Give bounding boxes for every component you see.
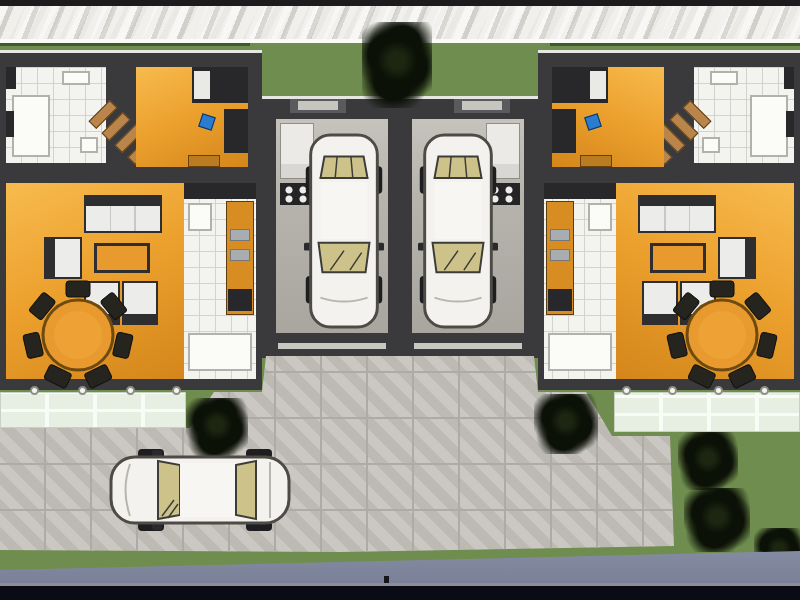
toilet [702,137,720,153]
blue-desk-chair [584,113,602,131]
living-room-right [616,183,794,379]
bathroom-wall-nib [784,67,794,89]
bathroom-right [694,67,794,163]
bed-pillow [590,71,606,99]
armchair [44,237,82,279]
round-dining-table [19,279,137,391]
bedroom-dresser [188,155,220,167]
terrace-light [760,386,769,395]
bathroom-wall-nib-2 [6,111,14,137]
kitchen-wall-band [544,183,616,199]
bedroom-desk [224,109,248,153]
living-room-left [6,183,184,379]
sofa [84,195,162,233]
round-dining-table [663,279,781,391]
terrace-right [614,392,800,432]
bathroom-sink [710,71,738,85]
garage-car-right [418,133,498,329]
bathtub [12,95,50,157]
kitchen-sink [230,229,250,241]
garage-block [262,96,538,358]
bed-pillow [194,71,210,99]
kitchen-sink [550,229,570,241]
tree-back-garden [362,22,432,108]
terrace-light [172,386,181,395]
coffee-table [94,243,150,273]
armchair [718,237,756,279]
bedroom-desk [552,109,576,153]
garage-door-track-left [278,343,386,349]
garage-roof-vent-left-glass [298,101,338,110]
fridge [188,203,212,231]
toilet [80,137,98,153]
kitchen-sink-2 [230,249,250,261]
tree-front-right-1 [678,432,738,490]
fridge [588,203,612,231]
bathtub [750,95,788,157]
garage-door-track-right [414,343,522,349]
bathroom-wall-nib-2 [786,111,794,137]
terrace-light [126,386,135,395]
terrace-left [0,392,186,428]
garage-car-left [304,133,384,329]
terrace-light [30,386,39,395]
stove [228,289,252,311]
stove [548,289,572,311]
bottom-frame-bar [0,583,800,600]
coffee-table [650,243,706,273]
site-plan-render [0,0,800,600]
kitchen-sink-2 [550,249,570,261]
kitchen-lower-cabinets [188,333,252,371]
bedroom-left [136,67,248,167]
house-left [0,50,262,390]
terrace-light [714,386,723,395]
tree-right-yard [534,394,598,454]
house-right [538,50,800,390]
parked-car [108,448,292,532]
sofa [638,195,716,233]
blue-desk-chair [198,113,216,131]
bedroom-right [552,67,664,167]
kitchen-wall-band [184,183,256,199]
kitchen-right [544,183,616,379]
garage-roof-vent-right-glass [462,101,502,110]
bathroom-wall-nib [6,67,16,89]
terrace-light [622,386,631,395]
bathroom-left [6,67,106,163]
terrace-light [668,386,677,395]
bathroom-sink [62,71,90,85]
bedroom-dresser [580,155,612,167]
kitchen-left [184,183,256,379]
tree-front-right-2 [684,488,750,552]
kitchen-lower-cabinets [548,333,612,371]
terrace-light [78,386,87,395]
